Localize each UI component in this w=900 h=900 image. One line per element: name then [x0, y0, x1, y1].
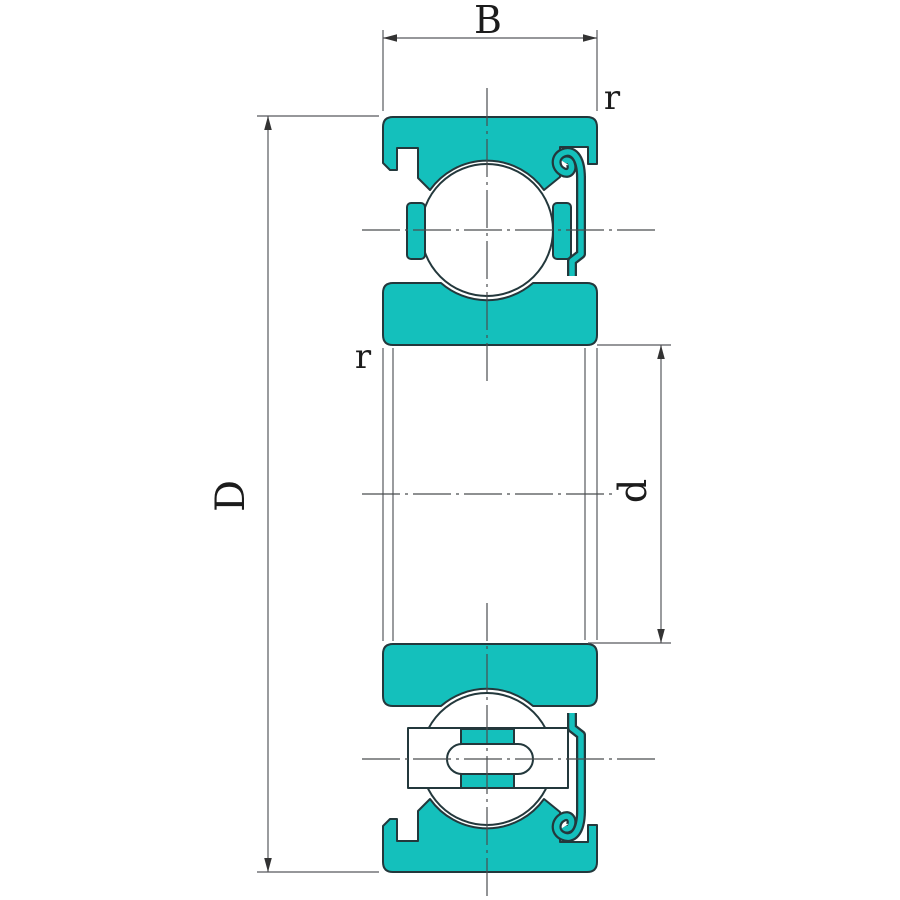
d-cap-arrowhead-top — [264, 116, 272, 130]
d-bore-arrowhead-top — [657, 345, 665, 359]
cage-bar-left-top — [407, 203, 425, 259]
bearing-section-drawing: B D d r r — [0, 0, 900, 900]
b-arrowhead-left — [383, 34, 397, 42]
dimension-label-bore-diameter: d — [611, 479, 655, 503]
dimension-label-width: B — [474, 0, 502, 42]
d-cap-arrowhead-bottom — [264, 858, 272, 872]
fillet-label-top-right: r — [604, 78, 621, 118]
fillet-label-inner-left: r — [355, 337, 372, 377]
b-arrowhead-right — [583, 34, 597, 42]
dimension-label-outer-diameter: D — [208, 480, 254, 512]
d-bore-arrowhead-bottom — [657, 629, 665, 643]
bearing-drawing-svg: B D d r r — [0, 0, 900, 900]
cage-bar-right-top — [553, 203, 571, 259]
